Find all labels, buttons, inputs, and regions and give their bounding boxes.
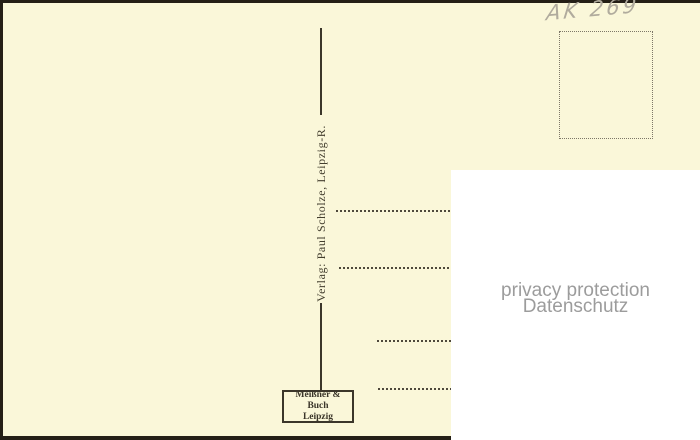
divider-line-top	[320, 28, 322, 115]
handwritten-note: AK 269	[545, 0, 668, 25]
privacy-overlay: privacy protection Datenschutz	[451, 170, 700, 440]
address-line	[336, 210, 451, 212]
photo-edge-left	[0, 0, 3, 440]
postcard-back-scan: AK 269 Verlag: Paul Scholze, Leipzig-R. …	[0, 0, 700, 440]
printer-box-line1: Meißner & Buch	[284, 390, 352, 412]
publisher-imprint: Verlag: Paul Scholze, Leipzig-R.	[305, 123, 337, 303]
publisher-imprint-text: Verlag: Paul Scholze, Leipzig-R.	[314, 125, 329, 302]
privacy-watermark-line2: Datenschutz	[451, 299, 700, 315]
stamp-box	[559, 31, 653, 139]
divider-line-bottom	[320, 303, 322, 390]
address-line	[339, 267, 451, 269]
address-line	[378, 388, 451, 390]
address-line	[377, 340, 451, 342]
privacy-watermark: privacy protection Datenschutz	[451, 283, 700, 315]
printer-box-line2: Leipzig	[303, 412, 333, 423]
printer-box: Meißner & Buch Leipzig	[282, 390, 354, 423]
